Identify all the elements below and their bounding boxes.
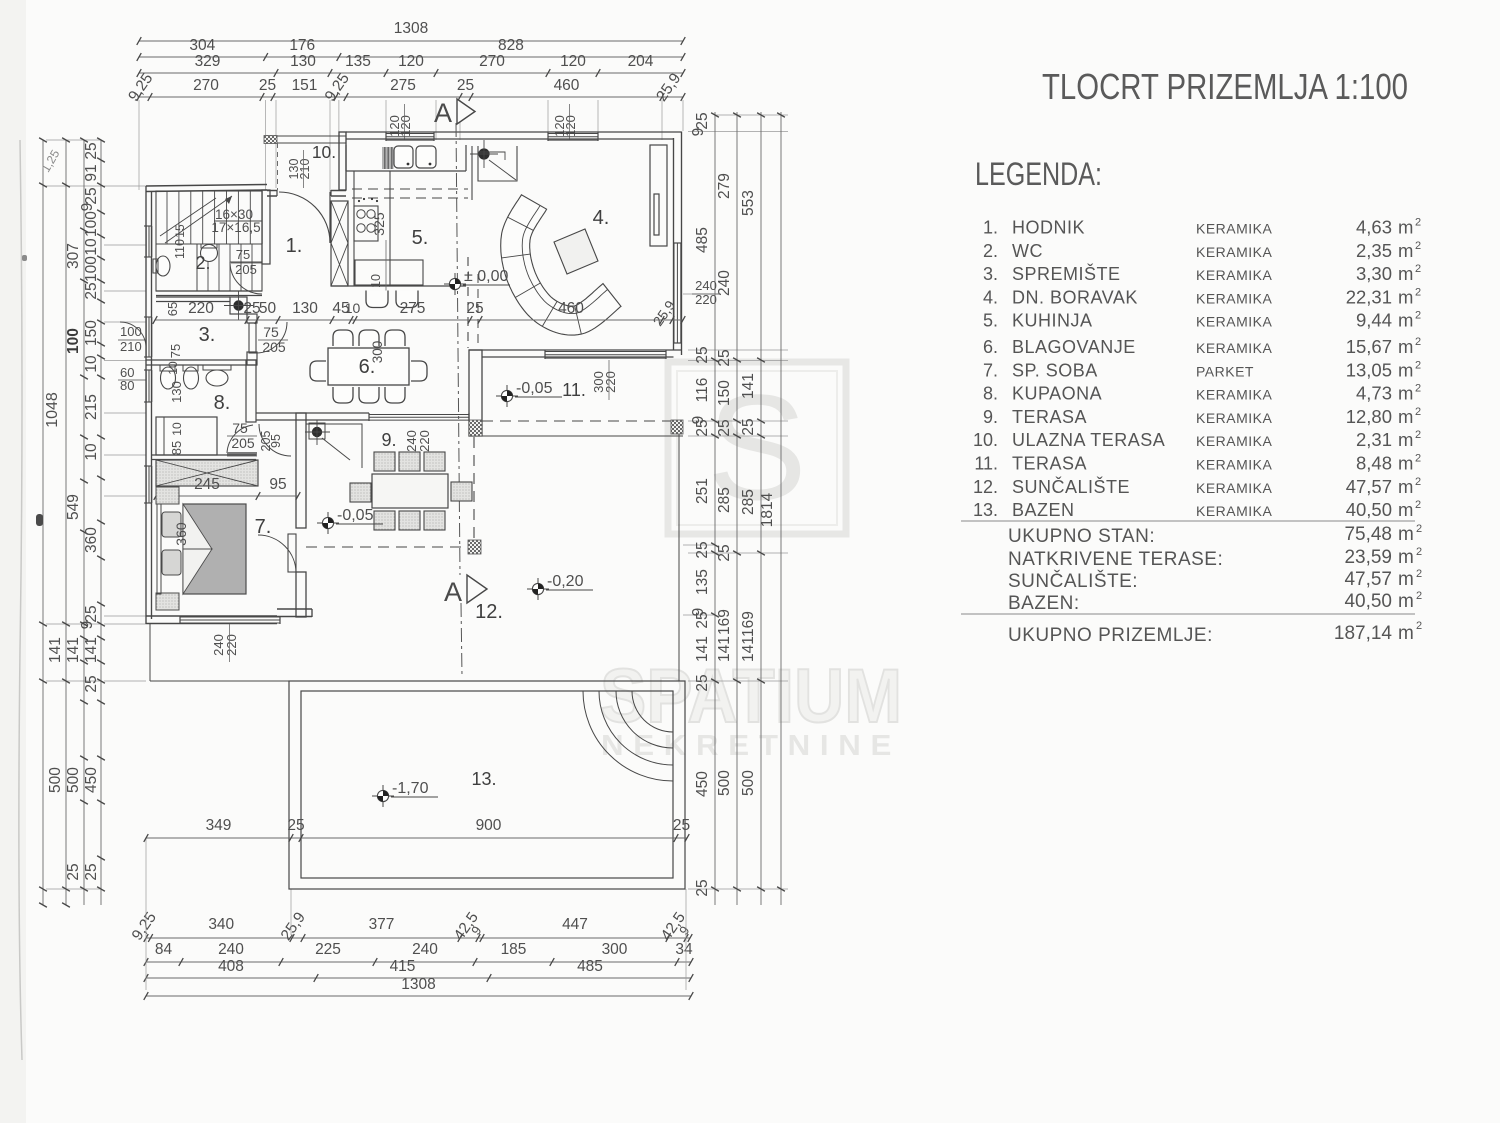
svg-text:2: 2 — [1415, 217, 1421, 229]
svg-text:1048: 1048 — [44, 392, 61, 428]
svg-text:m: m — [1398, 569, 1414, 590]
svg-text:1.: 1. — [286, 235, 303, 257]
svg-text:75: 75 — [168, 344, 183, 358]
svg-text:225: 225 — [315, 941, 341, 958]
svg-text:275: 275 — [390, 77, 416, 94]
svg-text:4.: 4. — [593, 207, 610, 229]
svg-text:25: 25 — [259, 77, 276, 94]
svg-text:m: m — [1398, 217, 1413, 238]
svg-text:25: 25 — [673, 817, 690, 834]
svg-text:11.: 11. — [974, 454, 998, 474]
svg-text:KERAMIKA: KERAMIKA — [1196, 457, 1273, 473]
svg-text:25: 25 — [457, 77, 474, 94]
svg-text:47,57: 47,57 — [1346, 476, 1392, 497]
svg-text:9: 9 — [690, 128, 707, 137]
svg-text:185: 185 — [501, 941, 527, 958]
svg-text:500: 500 — [716, 770, 733, 796]
svg-text:1814: 1814 — [759, 492, 776, 527]
svg-text:9: 9 — [79, 203, 96, 212]
svg-text:10.: 10. — [973, 430, 998, 450]
svg-text:141: 141 — [694, 636, 711, 662]
svg-text:279: 279 — [716, 173, 733, 199]
svg-text:8,48: 8,48 — [1356, 453, 1392, 474]
svg-text:25: 25 — [83, 863, 100, 880]
svg-text:2: 2 — [1415, 406, 1421, 418]
svg-text:205: 205 — [231, 435, 255, 451]
svg-text:415: 415 — [390, 958, 416, 975]
svg-text:329: 329 — [195, 53, 221, 70]
svg-text:4.: 4. — [983, 287, 998, 307]
svg-text:10.: 10. — [312, 142, 336, 162]
svg-text:25: 25 — [694, 346, 711, 363]
svg-text:A: A — [444, 577, 462, 607]
svg-text:10: 10 — [166, 361, 180, 375]
svg-text:251: 251 — [694, 478, 711, 504]
svg-text:240: 240 — [695, 278, 717, 293]
svg-text:PARKET: PARKET — [1196, 363, 1254, 379]
svg-text:BLAGOVANJE: BLAGOVANJE — [1012, 337, 1136, 357]
svg-text:12.: 12. — [475, 601, 503, 623]
svg-text:SPREMIŠTE: SPREMIŠTE — [1012, 263, 1121, 284]
svg-text:151: 151 — [292, 77, 318, 94]
svg-text:25: 25 — [243, 300, 260, 317]
svg-text:7.: 7. — [983, 360, 998, 380]
svg-text:2.: 2. — [983, 241, 998, 261]
svg-text:KERAMIKA: KERAMIKA — [1196, 290, 1273, 306]
svg-text:BAZEN: BAZEN — [1012, 500, 1075, 520]
svg-text:169: 169 — [740, 611, 757, 637]
svg-text:m: m — [1398, 406, 1413, 427]
svg-text:84: 84 — [155, 941, 173, 958]
svg-text:DN. BORAVAK: DN. BORAVAK — [1012, 287, 1138, 307]
svg-text:245: 245 — [194, 476, 220, 493]
svg-text:4,63: 4,63 — [1356, 217, 1392, 238]
svg-text:304: 304 — [189, 37, 215, 54]
svg-text:25: 25 — [694, 541, 711, 558]
svg-text:10: 10 — [170, 422, 184, 436]
svg-text:WC: WC — [1012, 241, 1043, 261]
svg-text:205: 205 — [262, 339, 286, 355]
svg-text:2: 2 — [1415, 453, 1421, 465]
svg-text:91: 91 — [83, 164, 100, 181]
svg-text:10: 10 — [83, 238, 100, 256]
svg-text:130: 130 — [290, 53, 316, 70]
svg-text:100: 100 — [83, 256, 100, 282]
svg-text:UKUPNO STAN:: UKUPNO STAN: — [1008, 526, 1155, 547]
svg-text:25: 25 — [83, 142, 100, 159]
svg-text:m: m — [1398, 336, 1413, 357]
svg-text:25: 25 — [694, 419, 711, 436]
svg-text:240: 240 — [412, 941, 438, 958]
svg-text:176: 176 — [289, 37, 315, 54]
svg-text:2: 2 — [1415, 499, 1421, 511]
svg-text:460: 460 — [558, 300, 584, 317]
svg-text:-1,70: -1,70 — [392, 780, 429, 797]
svg-text:8.: 8. — [983, 384, 998, 404]
svg-text:100: 100 — [83, 211, 100, 237]
svg-text:m: m — [1398, 453, 1413, 474]
svg-text:75: 75 — [232, 420, 248, 436]
svg-text:25: 25 — [65, 863, 82, 880]
svg-text:553: 553 — [740, 190, 757, 216]
svg-text:m: m — [1398, 623, 1414, 644]
svg-text:150: 150 — [716, 380, 733, 406]
svg-text:95: 95 — [269, 434, 283, 448]
svg-text:25: 25 — [287, 817, 304, 834]
svg-text:485: 485 — [694, 227, 711, 253]
svg-text:m: m — [1398, 310, 1413, 331]
svg-text:210: 210 — [120, 339, 142, 354]
svg-text:BAZEN:: BAZEN: — [1008, 593, 1080, 614]
svg-text:141: 141 — [47, 637, 64, 663]
svg-text:100: 100 — [120, 324, 142, 339]
svg-text:TERASA: TERASA — [1012, 454, 1087, 474]
svg-text:47,57: 47,57 — [1344, 569, 1392, 590]
svg-text:2: 2 — [1415, 383, 1421, 395]
svg-text:120: 120 — [560, 53, 586, 70]
svg-text:5.: 5. — [983, 311, 998, 331]
svg-text:KERAMIKA: KERAMIKA — [1196, 387, 1273, 403]
svg-text:13.: 13. — [973, 500, 998, 520]
svg-text:10: 10 — [369, 274, 383, 288]
svg-text:22,31: 22,31 — [1346, 286, 1392, 307]
svg-text:25: 25 — [740, 418, 757, 435]
svg-text:9.: 9. — [381, 430, 396, 450]
svg-text:85: 85 — [169, 441, 184, 455]
svg-text:m: m — [1398, 383, 1413, 404]
svg-text:25: 25 — [694, 879, 711, 896]
svg-text:NEKRETNINE: NEKRETNINE — [601, 730, 901, 762]
svg-text:KERAMIKA: KERAMIKA — [1196, 314, 1273, 330]
svg-text:A: A — [434, 98, 452, 128]
svg-text:40,50: 40,50 — [1344, 591, 1392, 612]
svg-text:65: 65 — [165, 302, 180, 316]
svg-text:2: 2 — [1415, 310, 1421, 322]
svg-text:187,14: 187,14 — [1334, 623, 1393, 644]
svg-text:2: 2 — [1416, 546, 1422, 558]
svg-text:360: 360 — [173, 522, 189, 546]
svg-text:2: 2 — [1415, 240, 1421, 252]
svg-text:6.: 6. — [983, 337, 998, 357]
svg-text:340: 340 — [208, 916, 234, 933]
svg-text:240: 240 — [716, 270, 733, 296]
svg-text:285: 285 — [740, 489, 757, 515]
svg-text:75,48: 75,48 — [1344, 524, 1392, 545]
svg-text:KERAMIKA: KERAMIKA — [1196, 340, 1273, 356]
svg-text:500: 500 — [740, 770, 757, 796]
svg-text:95: 95 — [269, 476, 286, 493]
svg-text:270: 270 — [479, 53, 505, 70]
svg-text:285: 285 — [716, 487, 733, 513]
svg-text:25: 25 — [716, 349, 733, 366]
svg-text:2: 2 — [1415, 359, 1421, 371]
svg-text:141: 141 — [716, 636, 733, 662]
svg-text:100: 100 — [65, 328, 82, 354]
svg-text:13,05: 13,05 — [1346, 359, 1392, 380]
svg-text:215: 215 — [83, 394, 100, 420]
svg-text:15: 15 — [173, 224, 187, 238]
svg-text:450: 450 — [83, 767, 100, 793]
svg-text:500: 500 — [65, 767, 82, 793]
svg-text:8.: 8. — [214, 392, 231, 414]
svg-text:25: 25 — [694, 611, 711, 628]
svg-text:34: 34 — [675, 941, 693, 958]
svg-text:4,73: 4,73 — [1356, 383, 1392, 404]
svg-text:135: 135 — [694, 569, 711, 595]
svg-text:TERASA: TERASA — [1012, 407, 1087, 427]
svg-text:135: 135 — [345, 53, 371, 70]
svg-text:KERAMIKA: KERAMIKA — [1196, 480, 1273, 496]
svg-text:13.: 13. — [471, 769, 496, 789]
svg-text:150: 150 — [83, 320, 100, 346]
svg-text:2: 2 — [1415, 263, 1421, 275]
svg-text:220: 220 — [417, 430, 432, 452]
svg-text:25: 25 — [83, 282, 100, 299]
svg-text:LEGENDA:: LEGENDA: — [975, 156, 1102, 192]
svg-text:-0,05: -0,05 — [516, 380, 553, 397]
svg-text:HODNIK: HODNIK — [1012, 218, 1085, 238]
svg-text:KERAMIKA: KERAMIKA — [1196, 433, 1273, 449]
svg-text:m: m — [1398, 429, 1413, 450]
svg-text:210: 210 — [298, 159, 312, 180]
svg-text:m: m — [1398, 263, 1413, 284]
svg-text:377: 377 — [369, 916, 395, 933]
svg-text:10: 10 — [345, 300, 361, 316]
svg-text:2: 2 — [1416, 590, 1422, 602]
svg-text:7.: 7. — [255, 516, 272, 538]
svg-text:m: m — [1398, 499, 1413, 520]
svg-text:25: 25 — [83, 187, 100, 204]
svg-text:3.: 3. — [199, 324, 216, 346]
svg-text:2: 2 — [1416, 620, 1422, 632]
svg-text:2,35: 2,35 — [1356, 240, 1392, 261]
svg-text:2: 2 — [1415, 429, 1421, 441]
svg-text:m: m — [1398, 524, 1414, 545]
svg-text:120: 120 — [398, 53, 424, 70]
svg-text:900: 900 — [476, 817, 502, 834]
svg-text:220: 220 — [603, 371, 618, 393]
svg-text:360: 360 — [83, 527, 100, 553]
svg-text:-0,20: -0,20 — [547, 573, 584, 590]
svg-text:275: 275 — [400, 300, 426, 317]
svg-text:NATKRIVENE TERASE:: NATKRIVENE TERASE: — [1008, 549, 1223, 570]
svg-text:325: 325 — [371, 212, 387, 236]
svg-text:75: 75 — [236, 247, 250, 262]
svg-text:KUPAONA: KUPAONA — [1012, 384, 1102, 404]
svg-text:2: 2 — [1415, 286, 1421, 298]
svg-text:SPATIUM: SPATIUM — [600, 654, 902, 739]
svg-text:204: 204 — [628, 53, 654, 70]
svg-text:75: 75 — [263, 324, 279, 340]
svg-text:KERAMIKA: KERAMIKA — [1196, 267, 1273, 283]
svg-text:130: 130 — [169, 381, 184, 403]
svg-text:110: 110 — [173, 239, 187, 259]
svg-text:9,44: 9,44 — [1356, 310, 1392, 331]
svg-text:2,31: 2,31 — [1356, 429, 1392, 450]
svg-text:25: 25 — [466, 300, 483, 317]
svg-text:3.: 3. — [983, 264, 998, 284]
svg-text:m: m — [1398, 240, 1413, 261]
svg-text:TLOCRT PRIZEMLJA 1:100: TLOCRT PRIZEMLJA 1:100 — [1042, 66, 1408, 107]
svg-text:141: 141 — [83, 637, 100, 663]
svg-text:1.: 1. — [983, 218, 998, 238]
svg-text:25: 25 — [716, 419, 733, 436]
svg-text:KERAMIKA: KERAMIKA — [1196, 503, 1273, 519]
svg-text:300: 300 — [602, 941, 628, 958]
svg-text:KUHINJA: KUHINJA — [1012, 311, 1093, 331]
svg-text:KERAMIKA: KERAMIKA — [1196, 244, 1273, 260]
svg-text:141: 141 — [740, 636, 757, 662]
svg-text:SUNČALIŠTE:: SUNČALIŠTE: — [1008, 570, 1138, 592]
svg-text:116: 116 — [694, 378, 711, 403]
svg-text:349: 349 — [206, 817, 232, 834]
svg-text:17×16,5: 17×16,5 — [211, 220, 260, 235]
svg-text:11.: 11. — [562, 380, 586, 400]
svg-text:485: 485 — [577, 958, 603, 975]
svg-text:6.: 6. — [359, 356, 376, 378]
svg-text:450: 450 — [694, 771, 711, 797]
svg-text:9.: 9. — [983, 407, 998, 427]
svg-text:m: m — [1398, 476, 1413, 497]
svg-text:40,50: 40,50 — [1346, 499, 1392, 520]
svg-text:500: 500 — [47, 767, 64, 793]
svg-text:828: 828 — [498, 37, 524, 54]
svg-text:m: m — [1398, 591, 1414, 612]
svg-text:25: 25 — [694, 674, 711, 691]
svg-text:220: 220 — [188, 300, 214, 317]
svg-text:2: 2 — [1415, 476, 1421, 488]
svg-text:130: 130 — [292, 300, 318, 317]
svg-text:± 0,00: ± 0,00 — [464, 268, 508, 285]
svg-text:270: 270 — [193, 77, 219, 94]
svg-text:m: m — [1398, 359, 1413, 380]
svg-text:307: 307 — [65, 243, 82, 269]
svg-text:2: 2 — [1416, 523, 1422, 535]
svg-text:50: 50 — [259, 300, 277, 317]
svg-text:9: 9 — [79, 621, 96, 630]
svg-text:408: 408 — [218, 958, 244, 975]
svg-text:220: 220 — [224, 634, 239, 656]
svg-text:15,67: 15,67 — [1346, 336, 1392, 357]
svg-text:m: m — [1398, 286, 1413, 307]
svg-text:25: 25 — [694, 112, 711, 129]
svg-text:1308: 1308 — [394, 20, 428, 37]
svg-text:KERAMIKA: KERAMIKA — [1196, 221, 1273, 237]
svg-text:5.: 5. — [412, 227, 429, 249]
svg-text:UKUPNO PRIZEMLJE:: UKUPNO PRIZEMLJE: — [1008, 625, 1213, 646]
svg-text:KERAMIKA: KERAMIKA — [1196, 410, 1273, 426]
svg-text:25: 25 — [83, 605, 100, 622]
svg-text:SUNČALIŠTE: SUNČALIŠTE — [1012, 476, 1130, 497]
svg-text:2: 2 — [1416, 568, 1422, 580]
svg-text:169: 169 — [716, 609, 733, 635]
svg-text:141: 141 — [65, 637, 82, 663]
svg-text:549: 549 — [65, 494, 82, 520]
svg-text:2: 2 — [1415, 336, 1421, 348]
svg-text:2.: 2. — [195, 253, 210, 273]
svg-text:240: 240 — [218, 941, 244, 958]
svg-text:23,59: 23,59 — [1344, 547, 1392, 568]
svg-text:10: 10 — [83, 355, 100, 373]
svg-text:141: 141 — [740, 373, 757, 399]
svg-text:460: 460 — [554, 77, 580, 94]
svg-text:205: 205 — [235, 262, 257, 277]
svg-text:12,80: 12,80 — [1346, 406, 1392, 427]
svg-text:m: m — [1398, 547, 1414, 568]
svg-text:12.: 12. — [973, 477, 998, 497]
svg-text:447: 447 — [562, 916, 588, 933]
svg-text:-0,05: -0,05 — [337, 507, 374, 524]
svg-text:25: 25 — [83, 675, 100, 692]
svg-text:1308: 1308 — [401, 976, 435, 993]
svg-text:ULAZNA TERASA: ULAZNA TERASA — [1012, 430, 1165, 450]
svg-text:10: 10 — [83, 443, 100, 461]
svg-text:3,30: 3,30 — [1356, 263, 1392, 284]
svg-text:SP. SOBA: SP. SOBA — [1012, 360, 1098, 380]
